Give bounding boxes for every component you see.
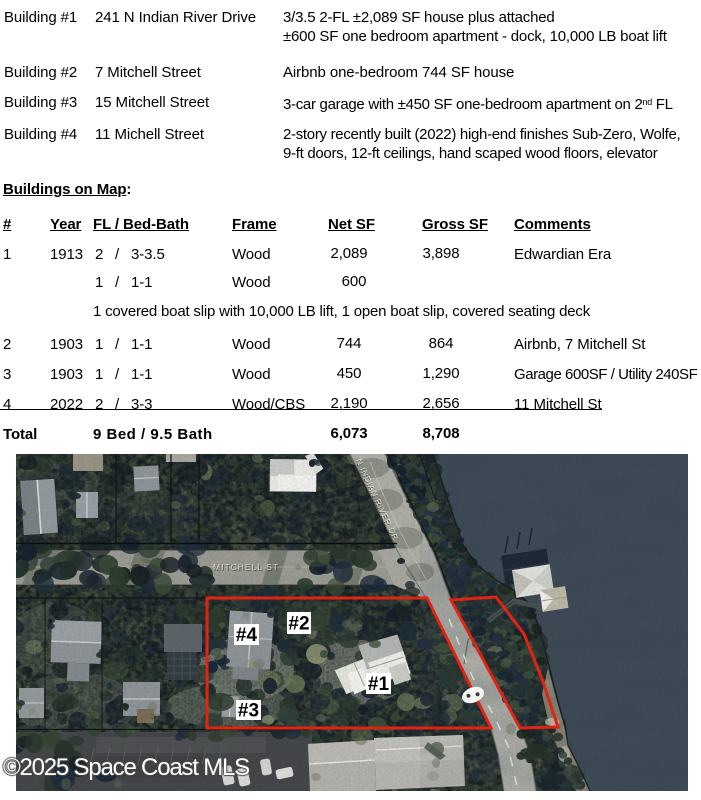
svg-text:#1: #1 [368, 674, 390, 695]
svg-text:#2: #2 [288, 614, 309, 635]
svg-text:#4: #4 [236, 625, 258, 646]
svg-text:#3: #3 [238, 701, 259, 722]
